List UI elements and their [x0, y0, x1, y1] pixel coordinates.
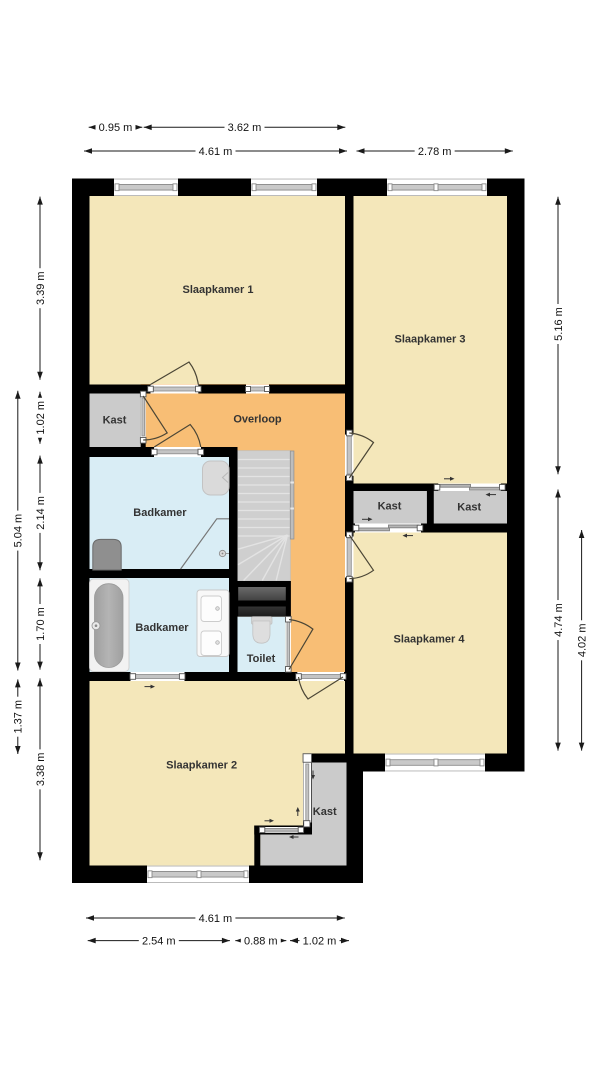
svg-text:2.78 m: 2.78 m: [418, 146, 452, 158]
svg-text:Overloop: Overloop: [233, 414, 282, 426]
svg-text:0.95 m: 0.95 m: [99, 122, 133, 134]
svg-text:3.62 m: 3.62 m: [228, 122, 262, 134]
svg-text:Slaapkamer 1: Slaapkamer 1: [183, 284, 254, 296]
svg-text:Slaapkamer 4: Slaapkamer 4: [394, 634, 466, 646]
svg-text:4.74 m: 4.74 m: [553, 603, 565, 637]
svg-text:1.37 m: 1.37 m: [13, 700, 25, 734]
svg-text:2.14 m: 2.14 m: [35, 496, 47, 530]
svg-text:5.04 m: 5.04 m: [13, 514, 25, 548]
svg-text:3.38 m: 3.38 m: [35, 753, 47, 787]
svg-text:2.54 m: 2.54 m: [142, 935, 176, 947]
svg-text:Badkamer: Badkamer: [133, 507, 187, 519]
svg-text:Kast: Kast: [313, 806, 337, 818]
svg-text:0.88 m: 0.88 m: [244, 935, 278, 947]
svg-text:5.16 m: 5.16 m: [553, 307, 565, 341]
svg-text:3.39 m: 3.39 m: [35, 271, 47, 305]
svg-text:4.61 m: 4.61 m: [199, 146, 233, 158]
svg-text:Badkamer: Badkamer: [135, 622, 189, 634]
svg-text:Toilet: Toilet: [247, 653, 276, 665]
svg-text:Slaapkamer 2: Slaapkamer 2: [166, 760, 237, 772]
svg-text:Kast: Kast: [103, 415, 127, 427]
svg-text:4.61 m: 4.61 m: [199, 913, 233, 925]
svg-text:1.70 m: 1.70 m: [35, 607, 47, 641]
svg-text:1.02 m: 1.02 m: [303, 935, 337, 947]
svg-text:Slaapkamer 3: Slaapkamer 3: [395, 334, 466, 346]
svg-text:1.02 m: 1.02 m: [35, 401, 47, 435]
svg-text:Kast: Kast: [378, 501, 402, 513]
svg-text:Kast: Kast: [457, 502, 481, 514]
svg-text:4.02 m: 4.02 m: [576, 623, 588, 657]
